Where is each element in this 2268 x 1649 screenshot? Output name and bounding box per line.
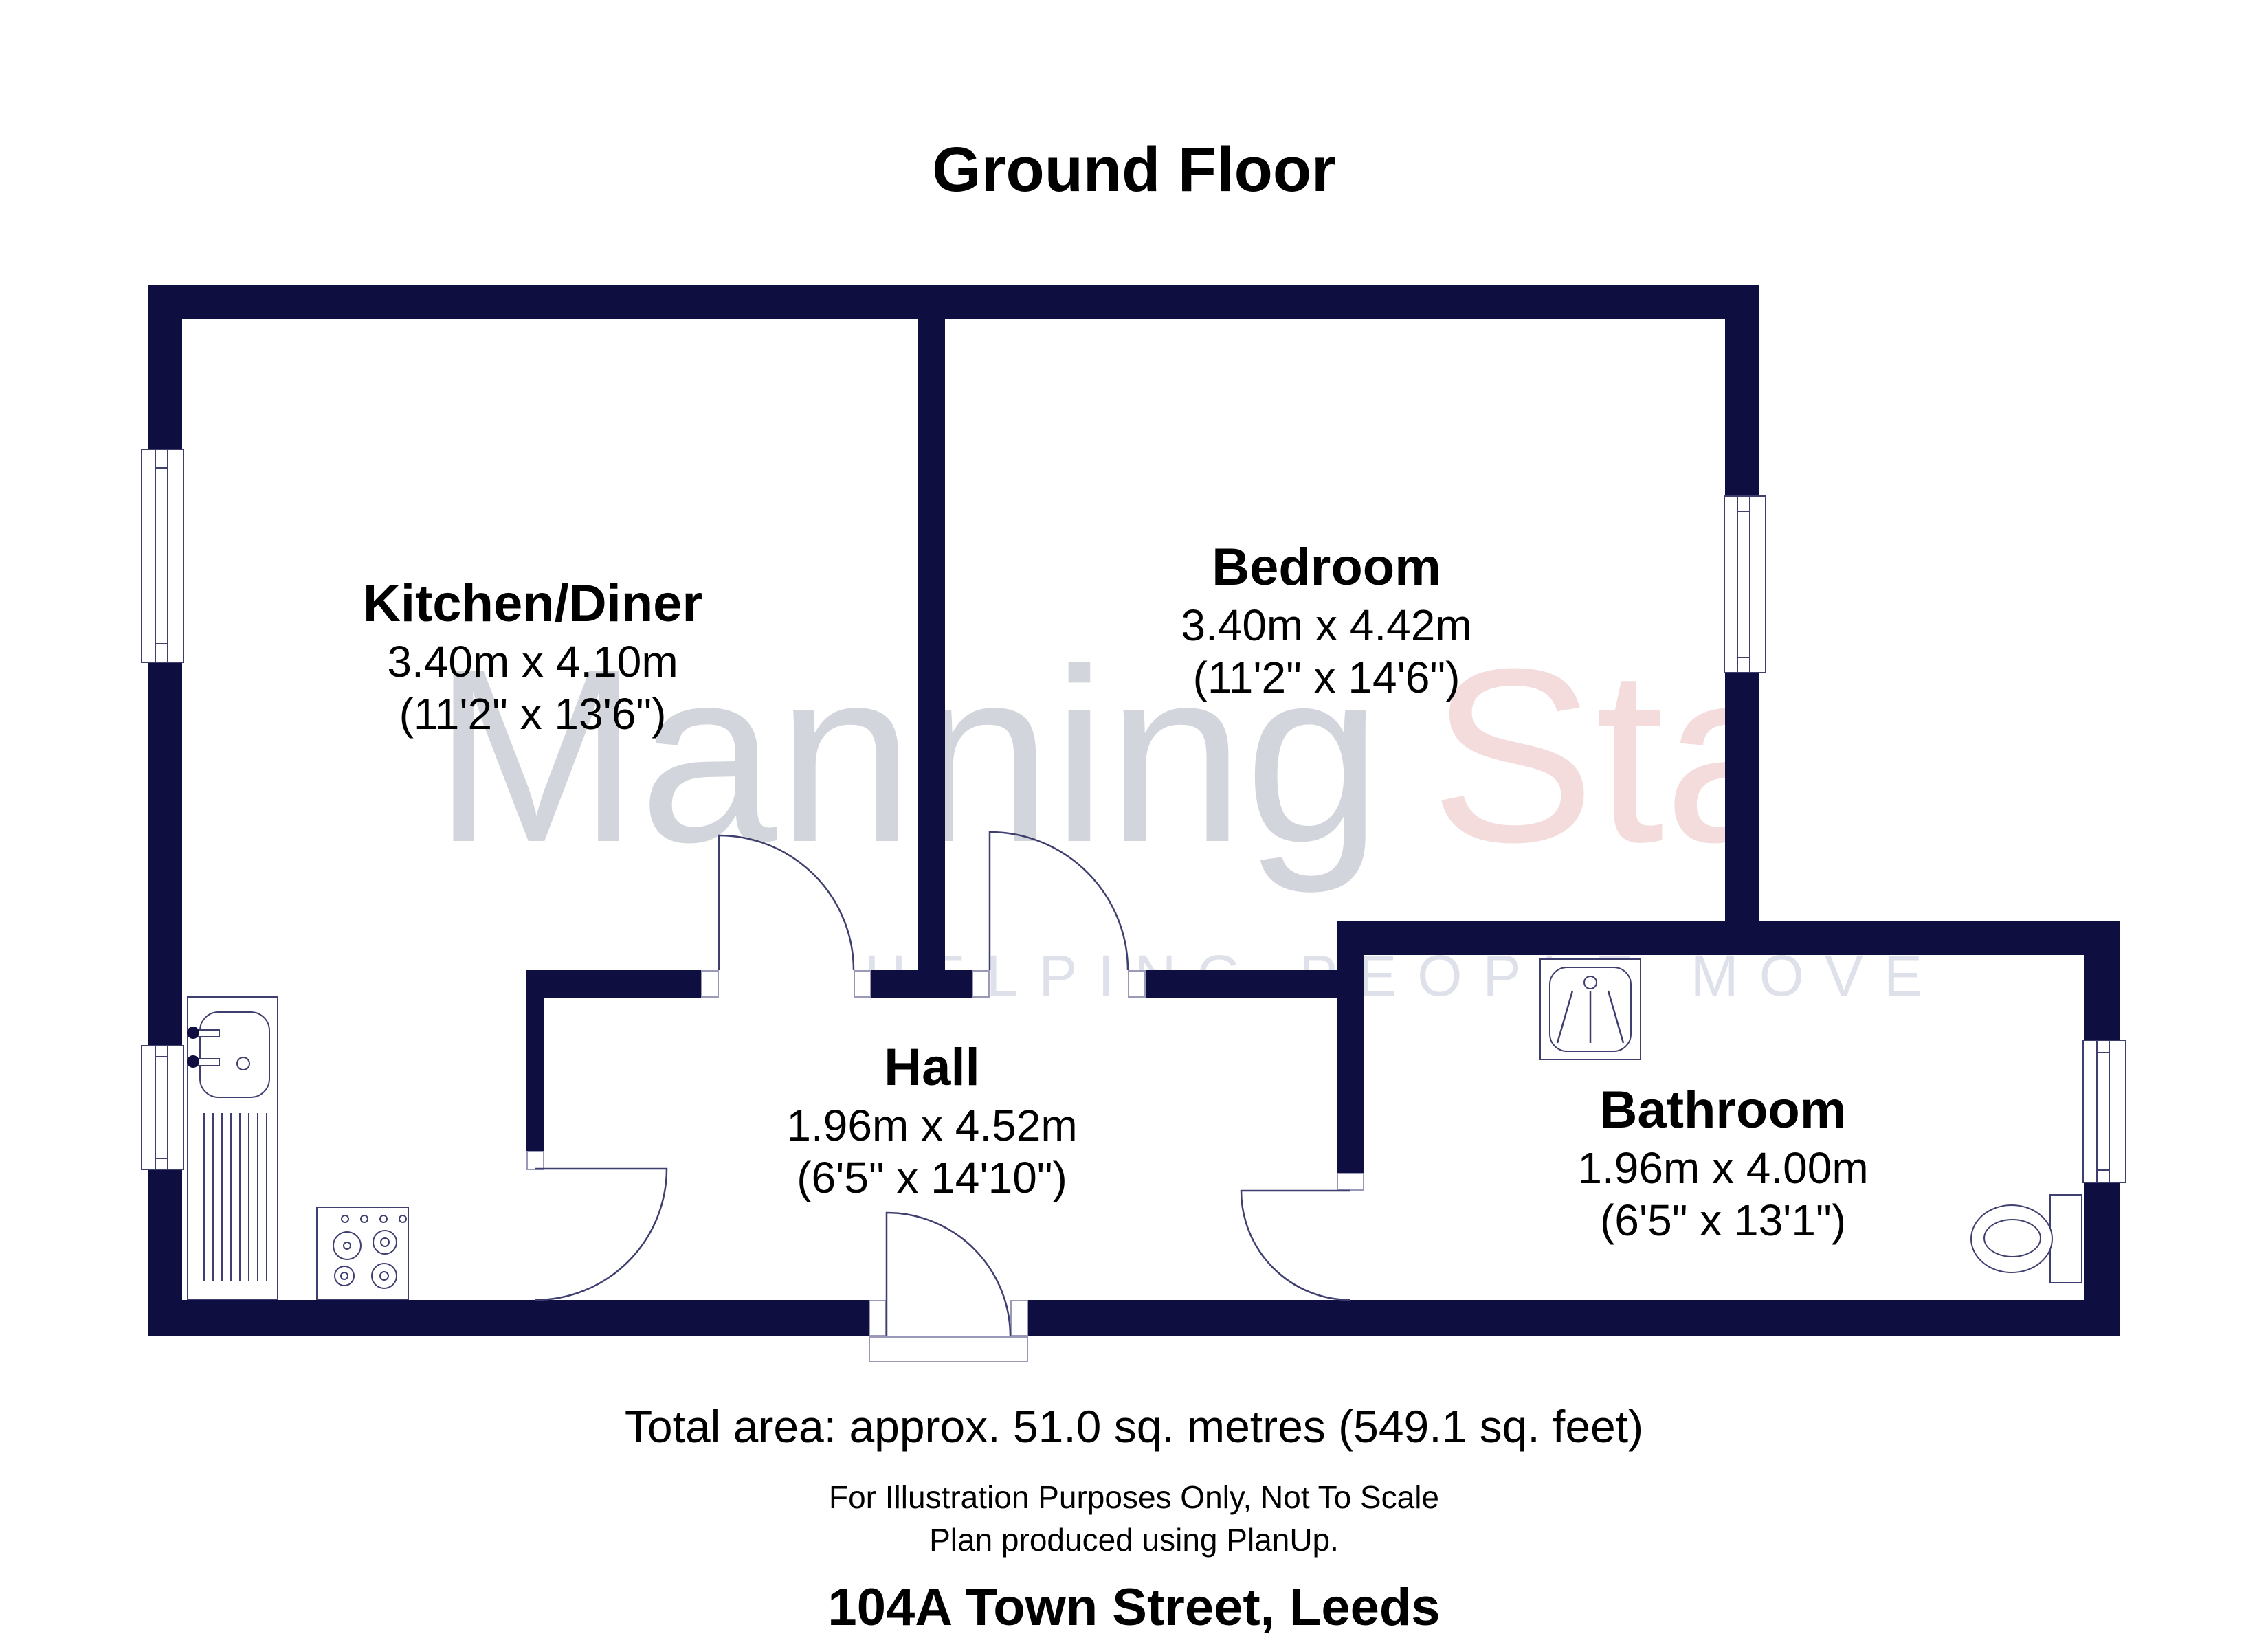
room-size-metric: 3.40m x 4.10m — [223, 636, 842, 688]
floorplan-page: { "title": "Ground Floor", "rooms": [ {"… — [0, 0, 2268, 1649]
front-door-swing — [887, 1213, 1010, 1336]
room-label-kitchen-diner: Kitchen/Diner 3.40m x 4.10m (11'2" x 13'… — [223, 572, 842, 740]
room-size-imperial: (6'5" x 13'1") — [1414, 1194, 2032, 1246]
room-name: Kitchen/Diner — [223, 572, 842, 636]
total-area-text: Total area: approx. 51.0 sq. metres (549… — [0, 1400, 2268, 1452]
bathroom-door-swing — [1241, 1191, 1350, 1300]
room-label-bedroom: Bedroom 3.40m x 4.42m (11'2" x 14'6") — [1017, 536, 1636, 704]
room-size-imperial: (11'2" x 13'6") — [223, 688, 842, 740]
kitchen-door-swing — [719, 835, 854, 970]
room-size-metric: 1.96m x 4.00m — [1414, 1142, 2032, 1194]
property-address: 104A Town Street, Leeds — [0, 1578, 2268, 1637]
room-size-metric: 1.96m x 4.52m — [623, 1099, 1241, 1152]
room-size-metric: 3.40m x 4.42m — [1017, 599, 1636, 651]
room-name: Hall — [623, 1036, 1241, 1099]
disclaimer-line1: For Illustration Purposes Only, Not To S… — [0, 1479, 2268, 1516]
room-size-imperial: (11'2" x 14'6") — [1017, 651, 1636, 704]
page-title: Ground Floor — [0, 134, 2268, 206]
room-name: Bedroom — [1017, 536, 1636, 599]
room-label-bathroom: Bathroom 1.96m x 4.00m (6'5" x 13'1") — [1414, 1079, 2032, 1246]
bedroom-door-swing — [990, 832, 1128, 970]
room-label-hall: Hall 1.96m x 4.52m (6'5" x 14'10") — [623, 1036, 1241, 1204]
shower-spray-lines — [1557, 991, 1623, 1043]
disclaimer-line2: Plan produced using PlanUp. — [0, 1521, 2268, 1558]
room-size-imperial: (6'5" x 14'10") — [623, 1152, 1241, 1204]
room-name: Bathroom — [1414, 1079, 2032, 1142]
